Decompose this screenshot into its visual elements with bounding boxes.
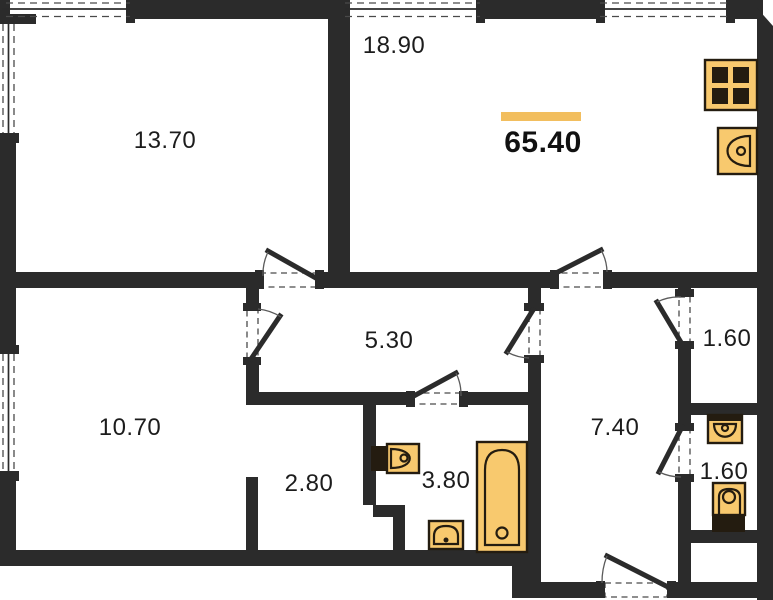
total-area-highlight-bar [501, 112, 581, 121]
room-area-label-1-60-wc: 1.60 [700, 458, 749, 486]
room-area-label-5-30: 5.30 [365, 327, 414, 355]
door-wc [659, 423, 694, 482]
stove-icon [705, 60, 757, 110]
floor-plan-drawing [0, 0, 773, 600]
room-area-label-18-90: 18.90 [363, 32, 426, 60]
total-area-label: 65.40 [504, 126, 582, 160]
window-left-bedroom-icon [3, 24, 14, 133]
room-area-label-2-80: 2.80 [285, 470, 334, 498]
door-bathroom [406, 373, 468, 407]
door-storage [657, 289, 694, 349]
window-left-bedroom2-icon [3, 354, 14, 471]
washbasin-icon [371, 444, 419, 473]
door-bedroom-bottom-left [243, 303, 281, 365]
door-bedroom-top-left [255, 251, 324, 289]
door-corridor-hall [507, 303, 544, 363]
room-area-label-3-80: 3.80 [422, 467, 471, 495]
room-area-label-13-70: 13.70 [134, 127, 197, 155]
window-kitchen-2-icon [600, 3, 730, 17]
room-area-label-1-60-storage: 1.60 [703, 325, 752, 353]
toilet-icon [712, 483, 745, 532]
door-entrance [596, 556, 676, 598]
window-kitchen-1-icon [345, 3, 480, 17]
pedestal-basin-icon [429, 521, 463, 549]
room-area-label-10-70: 10.70 [99, 414, 162, 442]
room-area-label-7-40: 7.40 [591, 414, 640, 442]
door-living-room [550, 250, 612, 289]
wc-basin-icon [708, 415, 742, 443]
kitchen-sink-icon [718, 128, 757, 174]
floor-plan: 13.70 18.90 10.70 5.30 2.80 3.80 7.40 1.… [0, 0, 773, 600]
bathtub-icon [477, 442, 527, 552]
